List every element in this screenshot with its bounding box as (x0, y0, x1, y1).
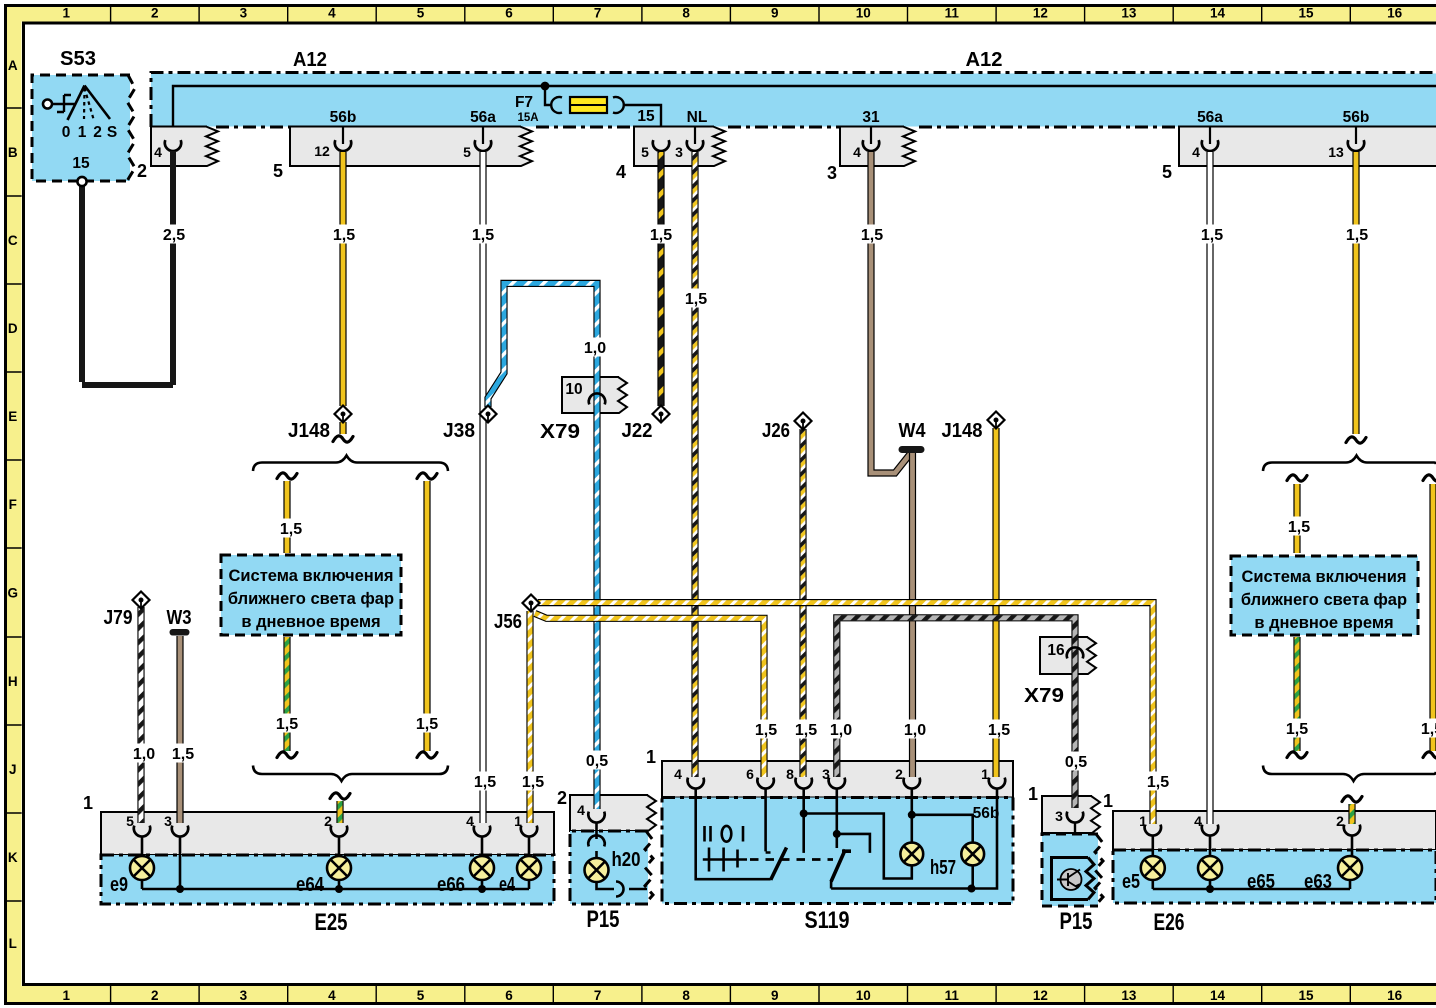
svg-text:15: 15 (1298, 988, 1314, 1003)
svg-text:7: 7 (594, 988, 602, 1003)
svg-text:3: 3 (822, 766, 830, 782)
svg-text:9: 9 (771, 988, 779, 1003)
svg-text:2,5: 2,5 (163, 227, 185, 244)
svg-text:P15: P15 (1060, 908, 1093, 935)
svg-text:9: 9 (771, 6, 779, 21)
svg-text:2: 2 (1336, 813, 1344, 829)
svg-text:e64: e64 (296, 874, 325, 896)
svg-text:1,5: 1,5 (474, 774, 496, 791)
svg-text:ближнего света фар: ближнего света фар (228, 590, 394, 608)
svg-text:1: 1 (63, 988, 71, 1003)
svg-text:W3: W3 (167, 607, 192, 629)
svg-text:2: 2 (137, 161, 147, 181)
svg-text:12: 12 (1033, 6, 1048, 21)
svg-text:1,5: 1,5 (276, 716, 298, 733)
svg-text:4: 4 (328, 988, 336, 1003)
svg-text:J148: J148 (288, 420, 330, 442)
svg-text:13: 13 (1121, 6, 1137, 21)
svg-text:1,5: 1,5 (861, 227, 883, 244)
svg-text:F7: F7 (515, 94, 533, 111)
svg-text:4: 4 (674, 766, 682, 782)
svg-text:7: 7 (594, 6, 602, 21)
svg-text:13: 13 (1328, 144, 1344, 160)
svg-text:10: 10 (565, 381, 582, 398)
svg-text:1,5: 1,5 (280, 521, 302, 538)
svg-text:15: 15 (1298, 6, 1314, 21)
svg-text:15: 15 (72, 155, 90, 172)
svg-text:15: 15 (637, 108, 655, 125)
svg-text:X79: X79 (1024, 685, 1064, 707)
svg-text:5: 5 (273, 161, 283, 181)
svg-text:13: 13 (1121, 988, 1137, 1003)
svg-text:5: 5 (417, 6, 425, 21)
svg-text:1: 1 (1139, 813, 1147, 829)
svg-text:1,0: 1,0 (830, 722, 852, 739)
svg-text:56b: 56b (330, 109, 357, 126)
svg-text:A12: A12 (293, 49, 327, 71)
svg-text:11: 11 (945, 988, 960, 1003)
svg-text:e66: e66 (437, 874, 465, 896)
svg-text:e9: e9 (110, 874, 128, 896)
svg-text:J38: J38 (443, 420, 475, 442)
svg-text:NL: NL (687, 109, 708, 126)
svg-text:E25: E25 (315, 909, 348, 936)
svg-text:0,5: 0,5 (1065, 754, 1087, 771)
svg-text:15A: 15A (517, 112, 538, 124)
svg-text:J26: J26 (762, 420, 790, 442)
svg-text:h57: h57 (930, 857, 956, 879)
svg-text:e5: e5 (1122, 871, 1140, 893)
svg-text:56b: 56b (1343, 109, 1370, 126)
svg-text:2: 2 (895, 766, 903, 782)
svg-text:K: K (8, 850, 18, 865)
svg-text:1,5: 1,5 (755, 722, 777, 739)
svg-text:5: 5 (1162, 162, 1172, 182)
svg-text:1,5: 1,5 (685, 291, 707, 308)
svg-text:2: 2 (151, 6, 159, 21)
svg-text:1: 1 (514, 813, 522, 829)
svg-text:5: 5 (463, 144, 471, 160)
svg-text:1,5: 1,5 (1201, 227, 1223, 244)
svg-text:14: 14 (1210, 988, 1226, 1003)
svg-text:2: 2 (557, 788, 567, 808)
svg-text:3: 3 (1055, 808, 1063, 824)
svg-text:2: 2 (324, 813, 332, 829)
svg-text:в дневное время: в дневное время (1254, 614, 1393, 632)
svg-text:1: 1 (981, 766, 989, 782)
svg-text:1,5: 1,5 (988, 722, 1010, 739)
svg-text:31: 31 (862, 109, 880, 126)
svg-text:H: H (8, 674, 18, 689)
svg-text:5: 5 (126, 813, 134, 829)
svg-text:1,5: 1,5 (1421, 721, 1436, 738)
svg-text:4: 4 (466, 813, 474, 829)
svg-text:3: 3 (675, 144, 683, 160)
svg-text:6: 6 (505, 988, 513, 1003)
svg-text:1: 1 (63, 6, 71, 21)
svg-text:1,5: 1,5 (416, 716, 438, 733)
svg-text:A: A (8, 58, 18, 73)
svg-text:11: 11 (945, 6, 960, 21)
svg-text:1,5: 1,5 (1147, 774, 1169, 791)
svg-text:8: 8 (786, 766, 794, 782)
svg-text:B: B (8, 145, 18, 160)
svg-text:J22: J22 (622, 420, 653, 442)
svg-text:6: 6 (505, 6, 513, 21)
svg-text:C: C (8, 233, 18, 248)
svg-text:1,0: 1,0 (584, 340, 606, 357)
svg-text:E26: E26 (1154, 909, 1185, 936)
svg-text:Система включения: Система включения (228, 567, 393, 585)
svg-text:h20: h20 (612, 849, 641, 871)
svg-text:56a: 56a (1197, 109, 1223, 126)
svg-text:16: 16 (1387, 988, 1403, 1003)
svg-text:0,5: 0,5 (586, 753, 608, 770)
svg-text:S: S (107, 124, 117, 141)
svg-text:12: 12 (1033, 988, 1048, 1003)
svg-text:1,5: 1,5 (1288, 519, 1310, 536)
svg-text:A12: A12 (966, 49, 1003, 71)
svg-text:W4: W4 (899, 420, 927, 442)
svg-text:1,5: 1,5 (1286, 721, 1308, 738)
svg-text:D: D (8, 321, 18, 336)
svg-text:e4: e4 (499, 874, 516, 896)
svg-text:16: 16 (1047, 642, 1065, 659)
svg-text:в дневное время: в дневное время (241, 613, 380, 631)
svg-text:5: 5 (417, 988, 425, 1003)
svg-text:X79: X79 (540, 421, 580, 443)
svg-text:J56: J56 (494, 611, 522, 633)
svg-text:4: 4 (577, 802, 585, 818)
svg-text:0: 0 (62, 124, 71, 141)
svg-text:1,0: 1,0 (133, 746, 155, 763)
svg-text:2: 2 (93, 124, 102, 141)
svg-text:4: 4 (616, 162, 626, 182)
svg-text:3: 3 (240, 988, 248, 1003)
svg-text:12: 12 (314, 143, 330, 159)
svg-text:1: 1 (646, 747, 656, 767)
svg-text:P15: P15 (587, 906, 620, 933)
svg-text:Система включения: Система включения (1241, 568, 1406, 586)
svg-text:J: J (9, 762, 17, 777)
svg-text:1: 1 (1103, 791, 1113, 811)
svg-text:3: 3 (164, 813, 172, 829)
svg-text:1,5: 1,5 (472, 227, 494, 244)
svg-text:e63: e63 (1304, 871, 1332, 893)
svg-text:10: 10 (856, 988, 871, 1003)
svg-text:16: 16 (1387, 6, 1403, 21)
svg-text:1,5: 1,5 (333, 227, 355, 244)
svg-text:F: F (9, 497, 17, 512)
svg-text:2: 2 (151, 988, 159, 1003)
svg-text:4: 4 (328, 6, 336, 21)
svg-text:1,5: 1,5 (172, 746, 194, 763)
svg-text:56b: 56b (973, 805, 1000, 822)
svg-text:3: 3 (827, 163, 837, 183)
svg-text:6: 6 (746, 766, 754, 782)
svg-text:1,0: 1,0 (904, 722, 926, 739)
svg-text:ближнего света фар: ближнего света фар (1241, 591, 1407, 609)
svg-text:J148: J148 (942, 420, 983, 442)
svg-text:4: 4 (853, 144, 861, 160)
svg-text:1: 1 (1028, 784, 1038, 804)
svg-text:S53: S53 (60, 48, 96, 70)
svg-text:e65: e65 (1247, 871, 1275, 893)
svg-text:L: L (9, 936, 17, 951)
svg-text:5: 5 (641, 144, 649, 160)
svg-text:10: 10 (856, 6, 871, 21)
svg-text:1,5: 1,5 (795, 722, 817, 739)
svg-text:S119: S119 (805, 907, 850, 934)
svg-text:1: 1 (78, 124, 87, 141)
svg-text:J79: J79 (104, 607, 133, 629)
svg-text:8: 8 (682, 6, 690, 21)
svg-text:56a: 56a (470, 109, 496, 126)
svg-text:4: 4 (154, 144, 162, 160)
svg-text:1,5: 1,5 (1346, 227, 1368, 244)
svg-text:1,5: 1,5 (522, 774, 544, 791)
svg-text:E: E (8, 409, 17, 424)
svg-text:1: 1 (83, 793, 93, 813)
svg-text:G: G (7, 586, 18, 601)
svg-text:1,5: 1,5 (650, 227, 672, 244)
svg-text:8: 8 (682, 988, 690, 1003)
svg-text:4: 4 (1194, 813, 1202, 829)
svg-text:3: 3 (240, 6, 248, 21)
svg-text:4: 4 (1192, 144, 1200, 160)
svg-text:14: 14 (1210, 6, 1226, 21)
